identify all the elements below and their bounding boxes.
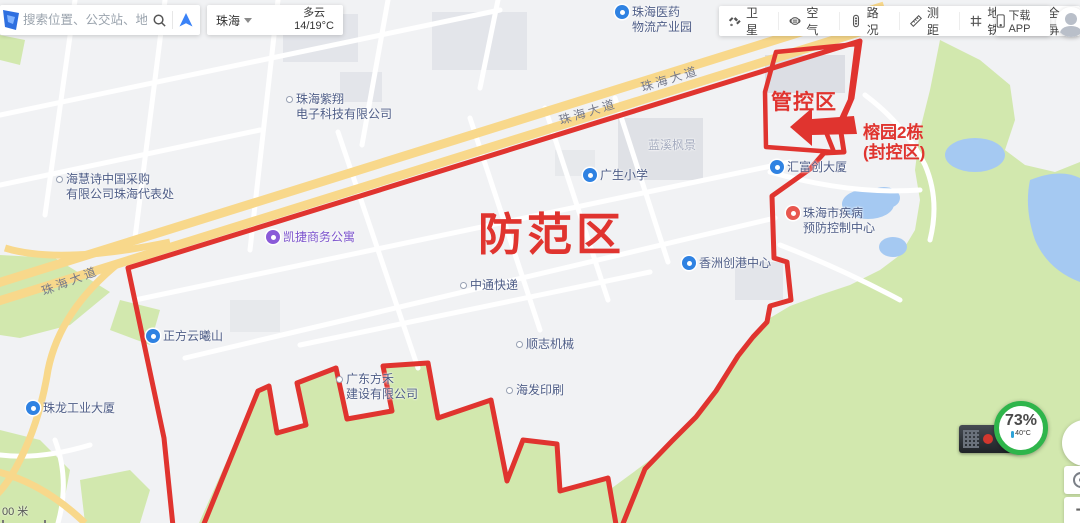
traffic-button[interactable]: 路况 [840, 12, 900, 30]
map-scale: 00 米 [2, 503, 46, 523]
baidu-map-logo-icon [1, 8, 21, 32]
search-bar [0, 5, 200, 35]
weather-widget[interactable]: 珠海 多云 14/19°C [207, 5, 343, 35]
gauge-temperature: 40°C [1015, 430, 1031, 438]
zoom-in-button[interactable]: + [1064, 497, 1080, 523]
poi-pin-icon [146, 329, 160, 343]
poi-zhulong-industrial[interactable]: 珠龙工业大厦 [26, 401, 115, 416]
user-avatar[interactable] [1056, 7, 1080, 37]
poi-dot-icon [460, 282, 467, 289]
poi-huifuchuang-tower[interactable]: 汇富创大厦 [770, 160, 847, 175]
poi-lanxi-fengjing: 蓝溪枫景 [648, 138, 696, 153]
poi-xiangzhou-center[interactable]: 香洲创港中心 [682, 256, 771, 271]
poi-pin-icon [583, 168, 597, 182]
poi-cdc-center[interactable]: 珠海市疾病 预防控制中心 [786, 206, 875, 235]
poi-dot-icon [56, 176, 63, 183]
city-selector[interactable]: 珠海 [216, 12, 240, 29]
poi-pin-icon [26, 401, 40, 415]
prevention-zone-label: 防范区 [478, 198, 625, 263]
lockdown-zone-label: 榕园2栋 (封控区) [863, 123, 925, 164]
poi-kaijie-apartment[interactable]: 凯捷商务公寓 [266, 230, 355, 245]
poi-dot-icon [336, 376, 343, 383]
poi-dot-icon [506, 387, 513, 394]
download-app-button[interactable]: 下载APP [996, 6, 1050, 36]
map-app-window: 珠海大道 珠海大道 珠海大道 珠海医药 物流产业园 珠海紫翔 电子科技有限公司 … [0, 0, 1080, 523]
poi-pin-icon [266, 230, 280, 244]
avatar-head-icon [1065, 13, 1077, 25]
poi-pin-icon [615, 5, 629, 19]
weather-condition: 多云 [303, 7, 325, 19]
poi-dot-icon [286, 96, 293, 103]
air-quality-button[interactable]: 空气 [779, 12, 839, 30]
poi-guangsheng-school[interactable]: 广生小学 [583, 168, 648, 183]
poi-fanghe-construction[interactable]: 广东方禾 建设有限公司 [336, 372, 418, 401]
poi-haihuishi-office[interactable]: 海慧诗中国采购 有限公司珠海代表处 [56, 172, 174, 201]
poi-zixiang-electronics[interactable]: 珠海紫翔 电子科技有限公司 [286, 92, 392, 121]
poi-pin-icon [682, 256, 696, 270]
widget-logo-icon [983, 434, 993, 444]
chevron-down-icon [244, 18, 252, 23]
poi-haifa-printing[interactable]: 海发印刷 [506, 383, 564, 398]
avatar-body-icon [1060, 26, 1080, 37]
search-input[interactable] [21, 13, 149, 27]
panorama-icon [1073, 472, 1080, 488]
poi-dot-icon [516, 341, 523, 348]
gauge-percent: 73% [999, 411, 1043, 430]
panorama-button[interactable] [1064, 466, 1080, 494]
satellite-button[interactable]: 卫星 [719, 12, 779, 30]
weather-temperature: 14/19°C [294, 20, 334, 32]
measure-distance-button[interactable]: 测距 [900, 12, 960, 30]
poi-zto-express[interactable]: 中通快递 [460, 278, 518, 293]
poi-zhengfang-yunxishan[interactable]: 正方云曦山 [146, 329, 223, 344]
compass-needle-icon [1072, 430, 1080, 456]
keypad-icon [963, 430, 979, 448]
phone-icon [996, 14, 1005, 28]
divider [172, 11, 173, 29]
directions-icon[interactable] [176, 10, 196, 30]
system-gauge-widget: 73% 40°C [994, 401, 1048, 455]
control-zone-label: 管控区 [771, 86, 837, 116]
poi-pin-icon [770, 160, 784, 174]
scale-text: 00 米 [2, 506, 28, 518]
poi-shunzhi-machinery[interactable]: 顺志机械 [516, 337, 574, 352]
poi-zhuhai-pharma-park[interactable]: 珠海医药 物流产业园 [615, 5, 692, 34]
poi-pin-icon [786, 206, 800, 220]
weather-info: 多云 14/19°C [294, 7, 334, 33]
search-icon[interactable] [149, 10, 169, 30]
thermometer-icon [1011, 431, 1014, 438]
